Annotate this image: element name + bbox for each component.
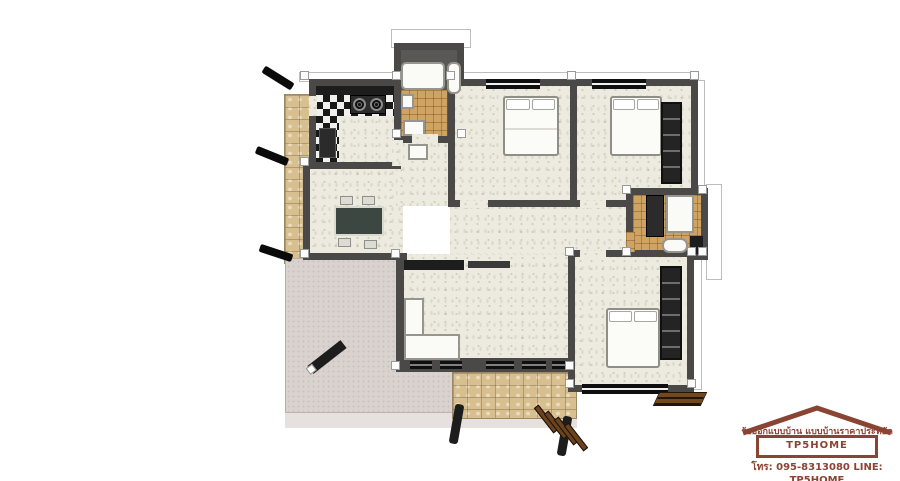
eave-bathroom-extension (706, 184, 722, 280)
window-bedroom-top-right (592, 79, 646, 89)
logo-contact: โทร: 095-8313080 LINE: TP5HOME (738, 460, 896, 481)
dining-chair (364, 240, 377, 249)
corner-post (690, 71, 699, 80)
toilet-right-bathroom (662, 238, 688, 253)
corner-post (391, 249, 400, 258)
pillow (532, 99, 555, 110)
bathtub (401, 62, 445, 90)
dining-chair (340, 196, 353, 205)
corner-post (565, 379, 574, 388)
corner-post (392, 71, 401, 80)
wardrobe-top-right (661, 102, 682, 184)
window-bedroom-bottom-right (582, 384, 668, 394)
corner-post (687, 247, 696, 256)
pillow (609, 311, 632, 322)
kitchen-upper-cabinets (316, 86, 394, 95)
window-bedroom-top-middle (486, 79, 540, 89)
wall-living-left (396, 253, 404, 366)
pillow (637, 99, 659, 110)
corner-post (391, 361, 400, 370)
corner-post (698, 247, 707, 256)
logo-brand: TP5HOME (738, 440, 896, 451)
wardrobe-bottom-right (660, 266, 682, 360)
kitchen-sink-appliance (319, 128, 336, 158)
kitchen-door-gap-left (309, 96, 317, 116)
pillow (613, 99, 635, 110)
corner-post (457, 129, 466, 138)
bedroom-bottom-right-door-gap (580, 250, 606, 258)
corner-post (446, 71, 455, 80)
wood-steps-bedroom (653, 392, 708, 406)
tv-shelf (468, 261, 510, 268)
corner-post (392, 129, 401, 138)
corner-post (567, 71, 576, 80)
dining-chair (338, 238, 351, 247)
window-living (522, 361, 546, 369)
bathroom-top-door-gap (412, 134, 438, 143)
kitchen-door-gap-right (392, 140, 403, 166)
tv-cabinet (404, 260, 464, 270)
pillow (506, 99, 530, 110)
window-living (440, 361, 462, 369)
sink-top-bathroom (401, 94, 414, 109)
tp5home-logo: รับออกแบบบ้าน แบบบ้านราคาประหยัด TP5HOME… (738, 402, 896, 474)
entry-patio (452, 372, 577, 419)
shower (666, 195, 694, 233)
dining-table (334, 206, 384, 236)
corner-post (622, 247, 631, 256)
wall-dining-left (303, 162, 310, 260)
bedroom-top-right-door-gap (580, 200, 606, 208)
corner-post (565, 247, 574, 256)
corner-post (687, 379, 696, 388)
corner-post (300, 71, 309, 80)
window-living (410, 361, 432, 369)
corner-post (698, 185, 707, 194)
bathroom-right-vanity (646, 195, 664, 237)
hall-wash-basin (408, 144, 428, 160)
floor-plan-canvas: รับออกแบบบ้าน แบบบ้านราคาประหยัด TP5HOME… (0, 0, 900, 481)
corner-post (622, 185, 631, 194)
corner-post (565, 361, 574, 370)
window-living (486, 361, 514, 369)
corner-post (300, 249, 309, 258)
dining-chair (362, 196, 375, 205)
bedroom-top-middle-door-gap (460, 200, 488, 208)
stove-burner-left-icon (353, 98, 366, 111)
bed-fold-line (505, 128, 557, 130)
stove-burner-right-icon (370, 98, 383, 111)
entry-arrow-icon (261, 66, 294, 91)
sofa-seat (404, 334, 460, 360)
corner-post (300, 157, 309, 166)
pillow (634, 311, 657, 322)
